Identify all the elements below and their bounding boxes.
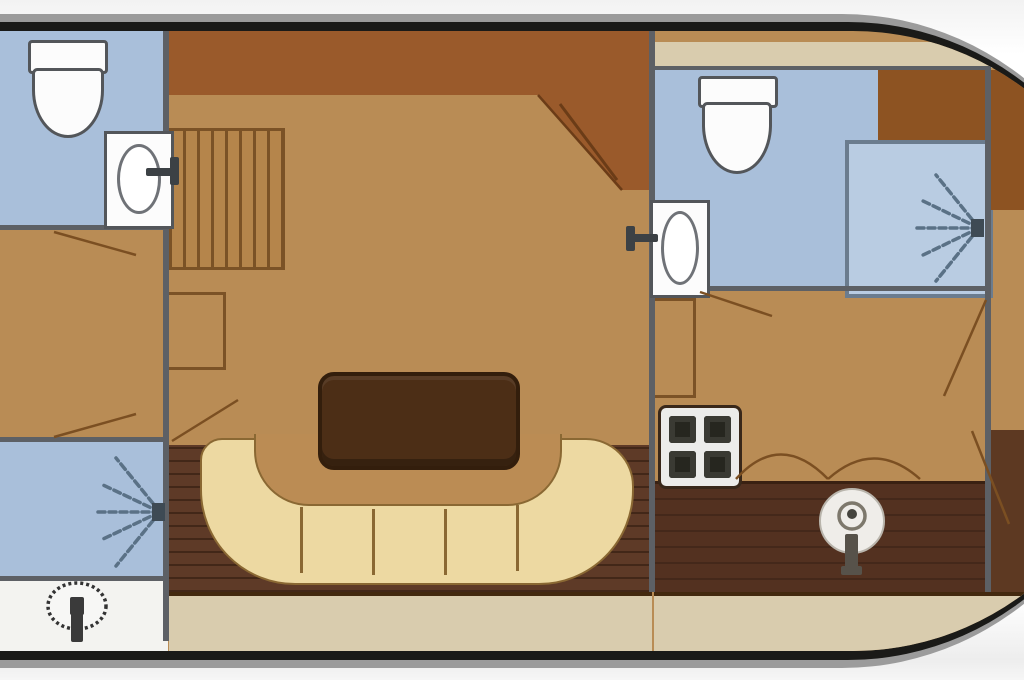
deck-floor	[0, 31, 1024, 651]
shower-head-aft	[152, 503, 165, 521]
door-swing-aft-deck	[172, 400, 238, 441]
shower-spray-icon-forward	[916, 175, 979, 281]
seat-scallop-left	[736, 455, 828, 480]
aft-faucet-handle-icon	[170, 157, 179, 185]
sideboard-diagonal-edge	[538, 95, 622, 190]
plan-linework	[0, 31, 1024, 651]
door-swing-saloon	[560, 104, 617, 180]
door-swing-bow-cabin	[944, 300, 986, 396]
seat-scallop-right	[828, 459, 920, 480]
shower-head-forward	[971, 219, 984, 237]
door-swing-aft-cabin-top	[54, 232, 136, 255]
door-swing-aft-cabin-bottom	[54, 414, 136, 437]
galley-basin-icon	[820, 489, 884, 575]
forward-faucet-handle-icon	[626, 226, 635, 251]
door-swing-bow-lower	[972, 431, 1009, 524]
door-swing-forward-cabin	[700, 292, 772, 316]
steering-wheel-icon	[48, 583, 106, 642]
shower-spray-icon-aft	[96, 458, 160, 566]
boat-floor-plan	[0, 0, 1024, 680]
